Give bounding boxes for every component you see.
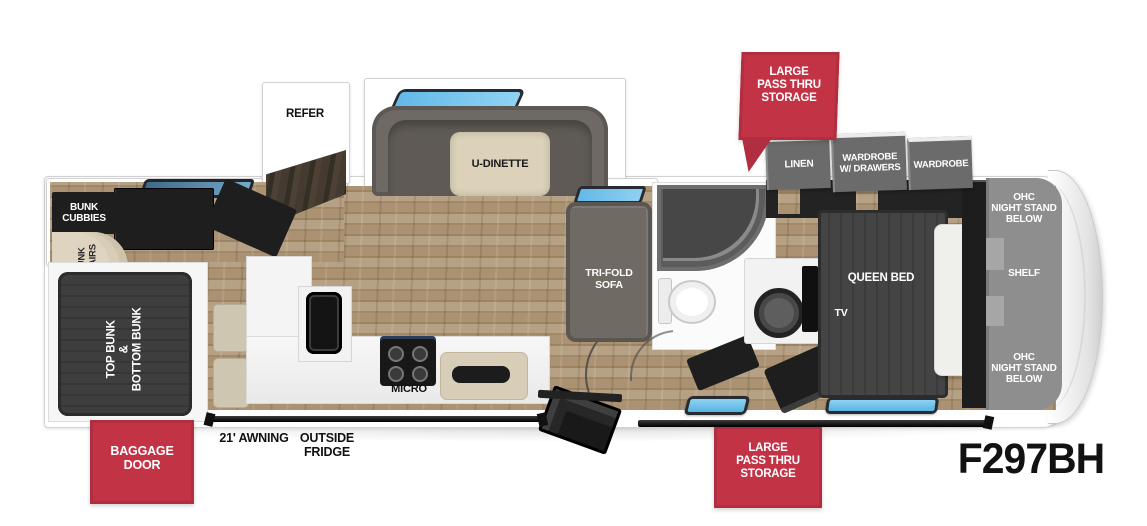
awning-rail-right: [638, 420, 990, 427]
shelf-label: SHELF: [984, 268, 1064, 279]
wardrobe-wood-sliver-1: [778, 186, 800, 214]
stove-burner-1: [388, 346, 404, 362]
awning-label: 21' AWNING: [206, 431, 302, 445]
ohc-notch-2: [986, 296, 1004, 326]
toilet-bowl: [668, 280, 716, 324]
tv-unit: [802, 266, 818, 332]
ohc-bottom-label: OHC NIGHT STAND BELOW: [984, 352, 1064, 386]
outside-fridge-label: OUTSIDE FRIDGE: [294, 431, 360, 459]
kitchen-table-mat: [452, 366, 510, 383]
bottom-window-1: [684, 396, 751, 415]
u-dinette-label: U-DINETTE: [472, 158, 529, 170]
wardrobe-drawers-label: WARDROBE W/ DRAWERS: [839, 152, 901, 175]
cushion-top: [213, 304, 249, 352]
cushion-bottom: [213, 358, 249, 408]
stove-burner-3: [388, 366, 404, 382]
pass-thru-storage-bottom-label: LARGE PASS THRU STORAGE: [714, 442, 822, 481]
linen-closet: LINEN: [765, 136, 831, 190]
refer-label: REFER: [268, 108, 342, 121]
kitchen-sink: [306, 292, 342, 354]
micro-label: MICRO: [378, 383, 440, 395]
ohc-top-label: OHC NIGHT STAND BELOW: [984, 192, 1064, 226]
queen-bed-label: QUEEN BED: [822, 272, 940, 285]
wardrobe-drawers-closet: WARDROBE W/ DRAWERS: [831, 132, 907, 193]
wardrobe-label: WARDROBE: [913, 159, 968, 172]
bottom-window-2: [825, 397, 939, 414]
queen-bed: [818, 210, 948, 398]
wardrobe-closet: WARDROBE: [907, 136, 973, 190]
bunk-cabinet: [114, 188, 214, 250]
tv-label: TV: [826, 308, 856, 320]
linen-label: LINEN: [784, 159, 813, 171]
dinette-table: U-DINETTE: [450, 132, 550, 196]
baggage-door-label: BAGGAGE DOOR: [90, 444, 194, 472]
stove-burner-2: [412, 346, 428, 362]
vanity-sink: [754, 288, 804, 338]
pass-thru-storage-top-label: LARGE PASS THRU STORAGE: [740, 66, 838, 105]
floorplan-diagram: BUNK CUBBIES BUNK STAIRS TOP BUNK & BOTT…: [0, 0, 1147, 526]
bunk-bed-label: TOP BUNK & BOTTOM BUNK: [106, 279, 145, 419]
awning-rail-left: [210, 416, 544, 422]
sofa-label: TRI-FOLD SOFA: [566, 268, 652, 292]
stove-burner-4: [412, 366, 428, 382]
model-label: F297BH: [950, 438, 1112, 481]
ohc-notch-1: [986, 238, 1004, 270]
